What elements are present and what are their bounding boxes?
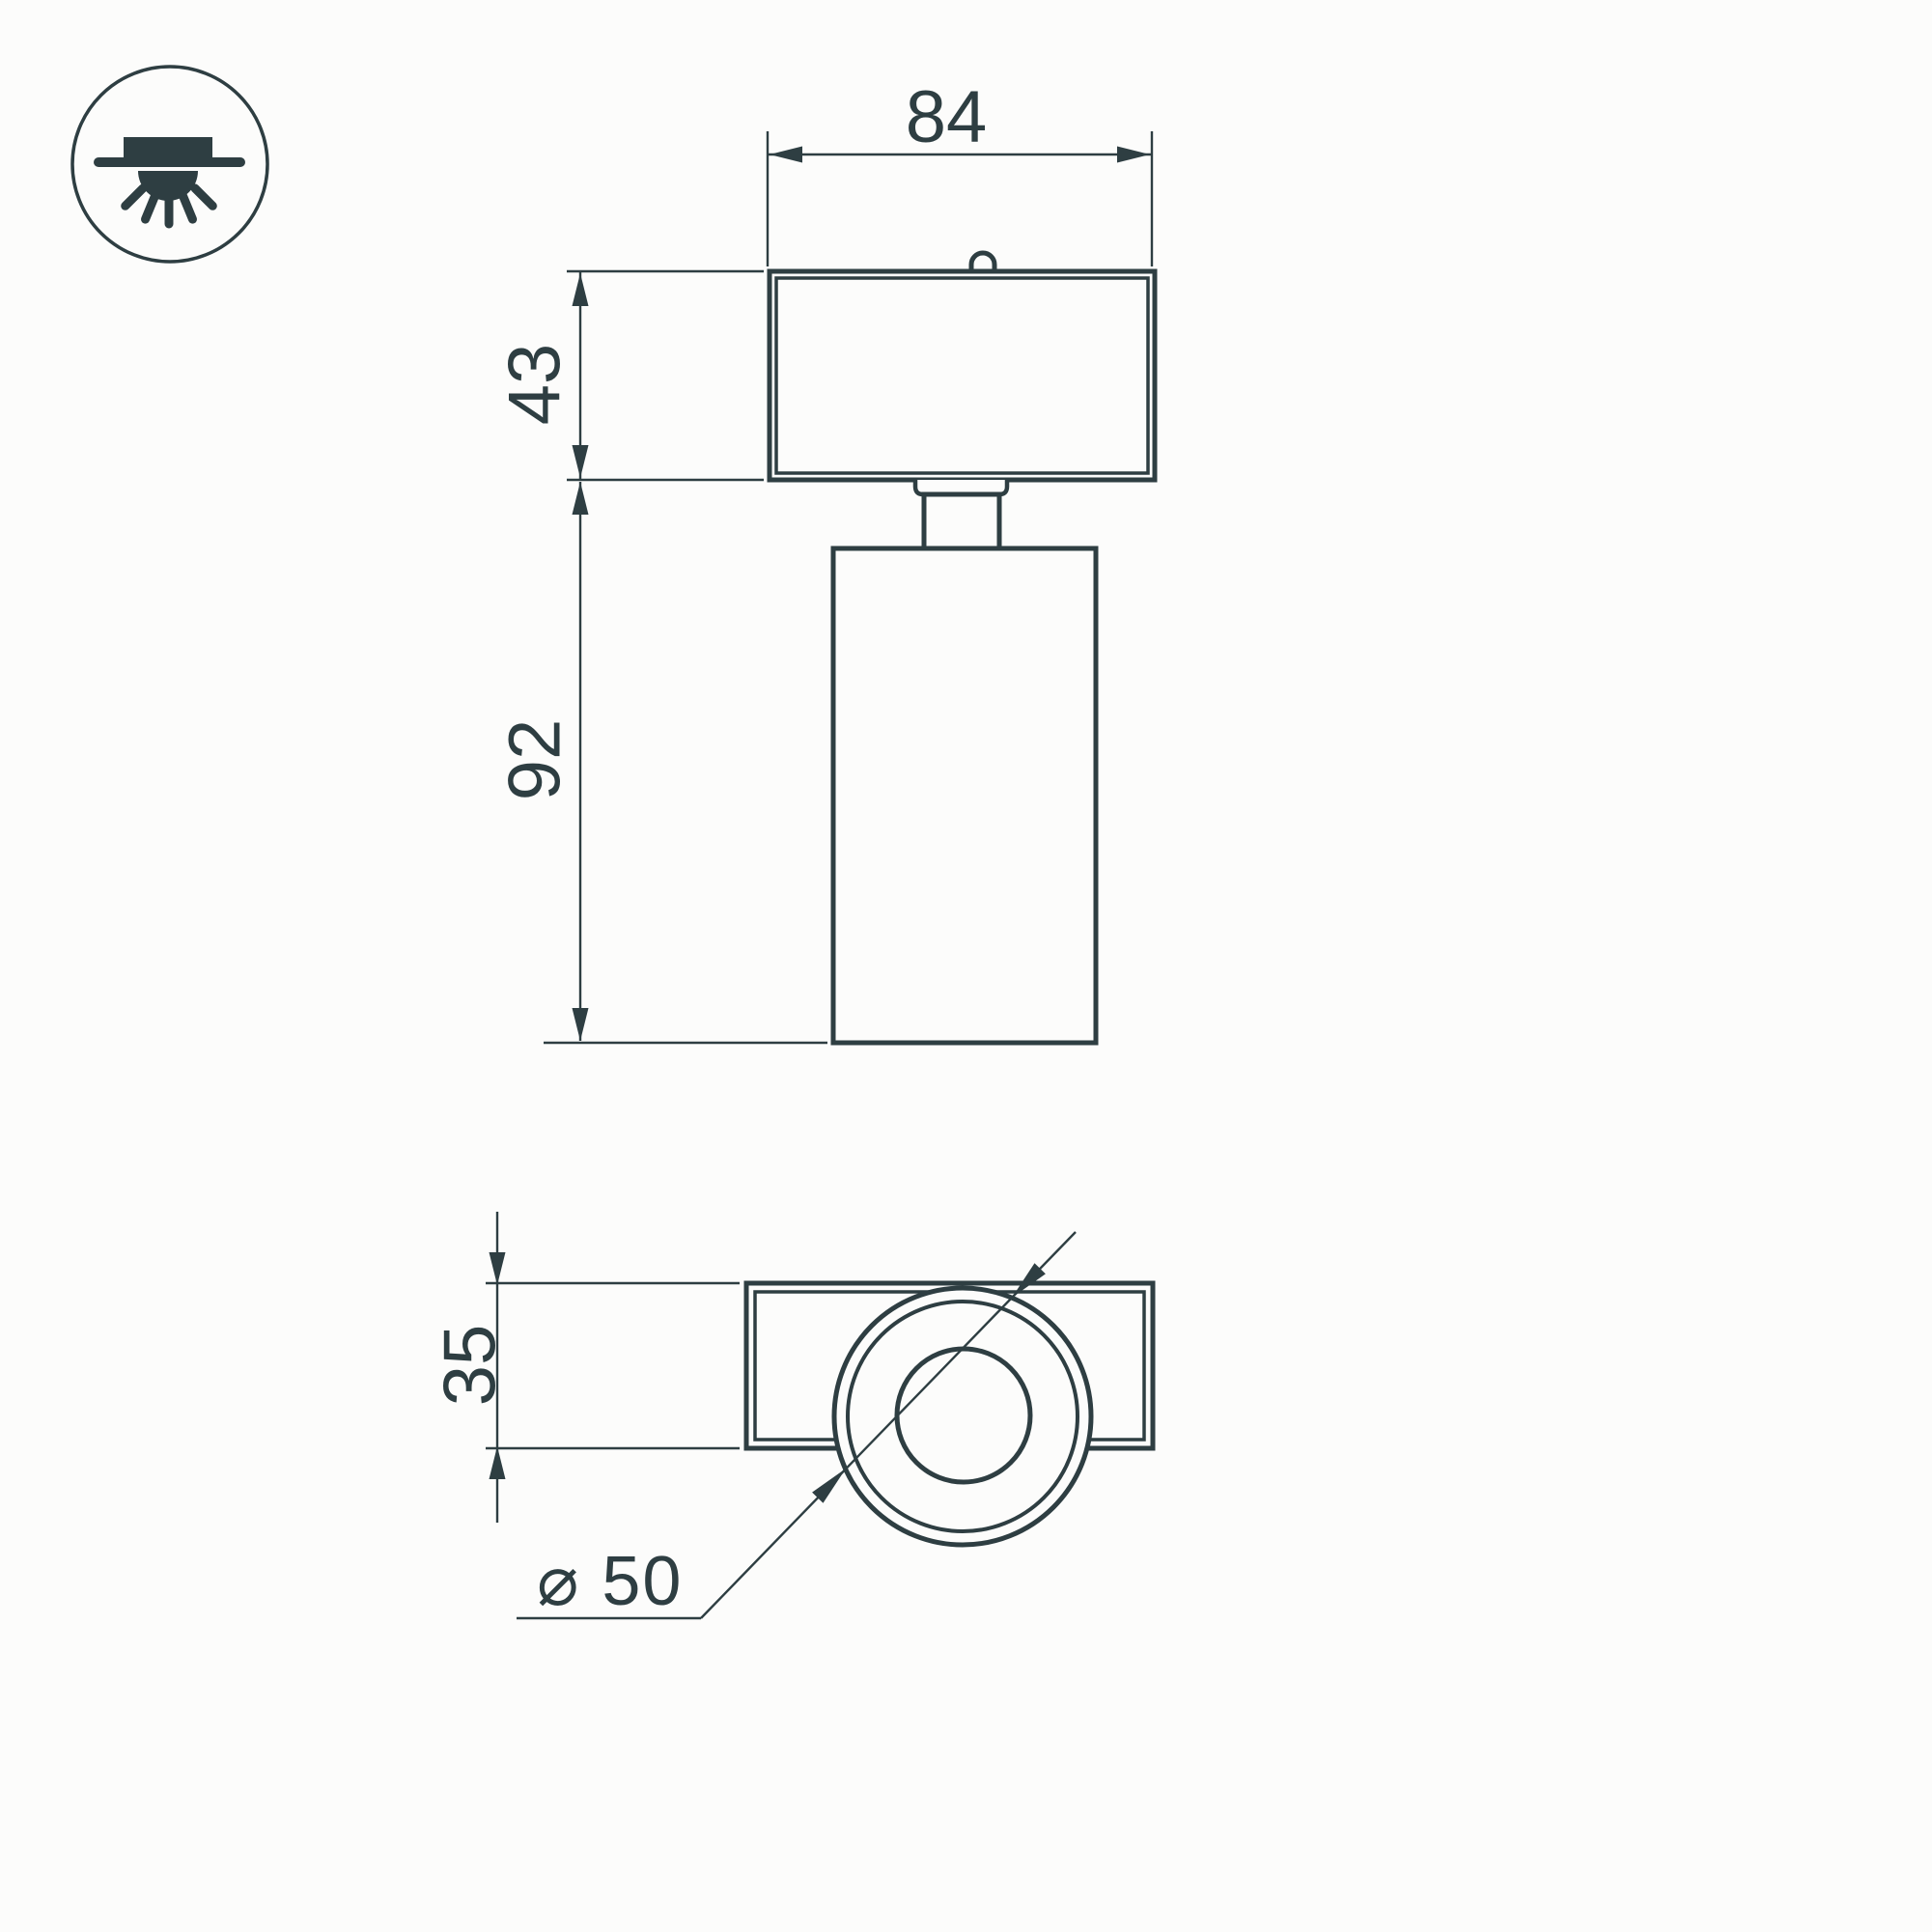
dim-43-label: 43 — [494, 344, 576, 426]
dim-35-arrow-bottom — [490, 1446, 506, 1479]
dim-depth-35: 35 — [430, 1212, 740, 1523]
dim-92-arrow-bottom — [573, 1008, 589, 1041]
dim-base-height-43: 43 — [494, 271, 764, 480]
dim-84-arrow-right — [1117, 147, 1150, 163]
front-neck — [924, 494, 999, 548]
dim-50-label: ⌀ 50 — [537, 1543, 683, 1620]
dimension-drawing: 84 43 92 — [0, 0, 1932, 1932]
dim-body-height-92: 92 — [494, 482, 827, 1043]
dim-92-arrow-top — [573, 482, 589, 515]
front-view: 84 43 92 — [494, 76, 1155, 1043]
icon-ceiling-bar — [94, 157, 245, 167]
dim-43-arrow-bottom — [573, 445, 589, 478]
dim-84-label: 84 — [906, 76, 988, 158]
dim-35-label: 35 — [430, 1325, 512, 1407]
front-cylinder-body — [833, 548, 1096, 1043]
dim-width-84: 84 — [768, 76, 1152, 266]
dim-92-label: 92 — [494, 719, 576, 801]
dim-43-arrow-top — [573, 273, 589, 306]
front-base-outer — [770, 271, 1155, 480]
dim-35-arrow-top — [490, 1252, 506, 1285]
bottom-view: 35 ⌀ 50 — [430, 1212, 1153, 1620]
technical-drawing-page: 84 43 92 — [0, 0, 1932, 1932]
bottom-lens-circle — [897, 1349, 1030, 1482]
surface-ceiling-light-icon — [72, 67, 267, 262]
dim-84-arrow-left — [770, 147, 802, 163]
